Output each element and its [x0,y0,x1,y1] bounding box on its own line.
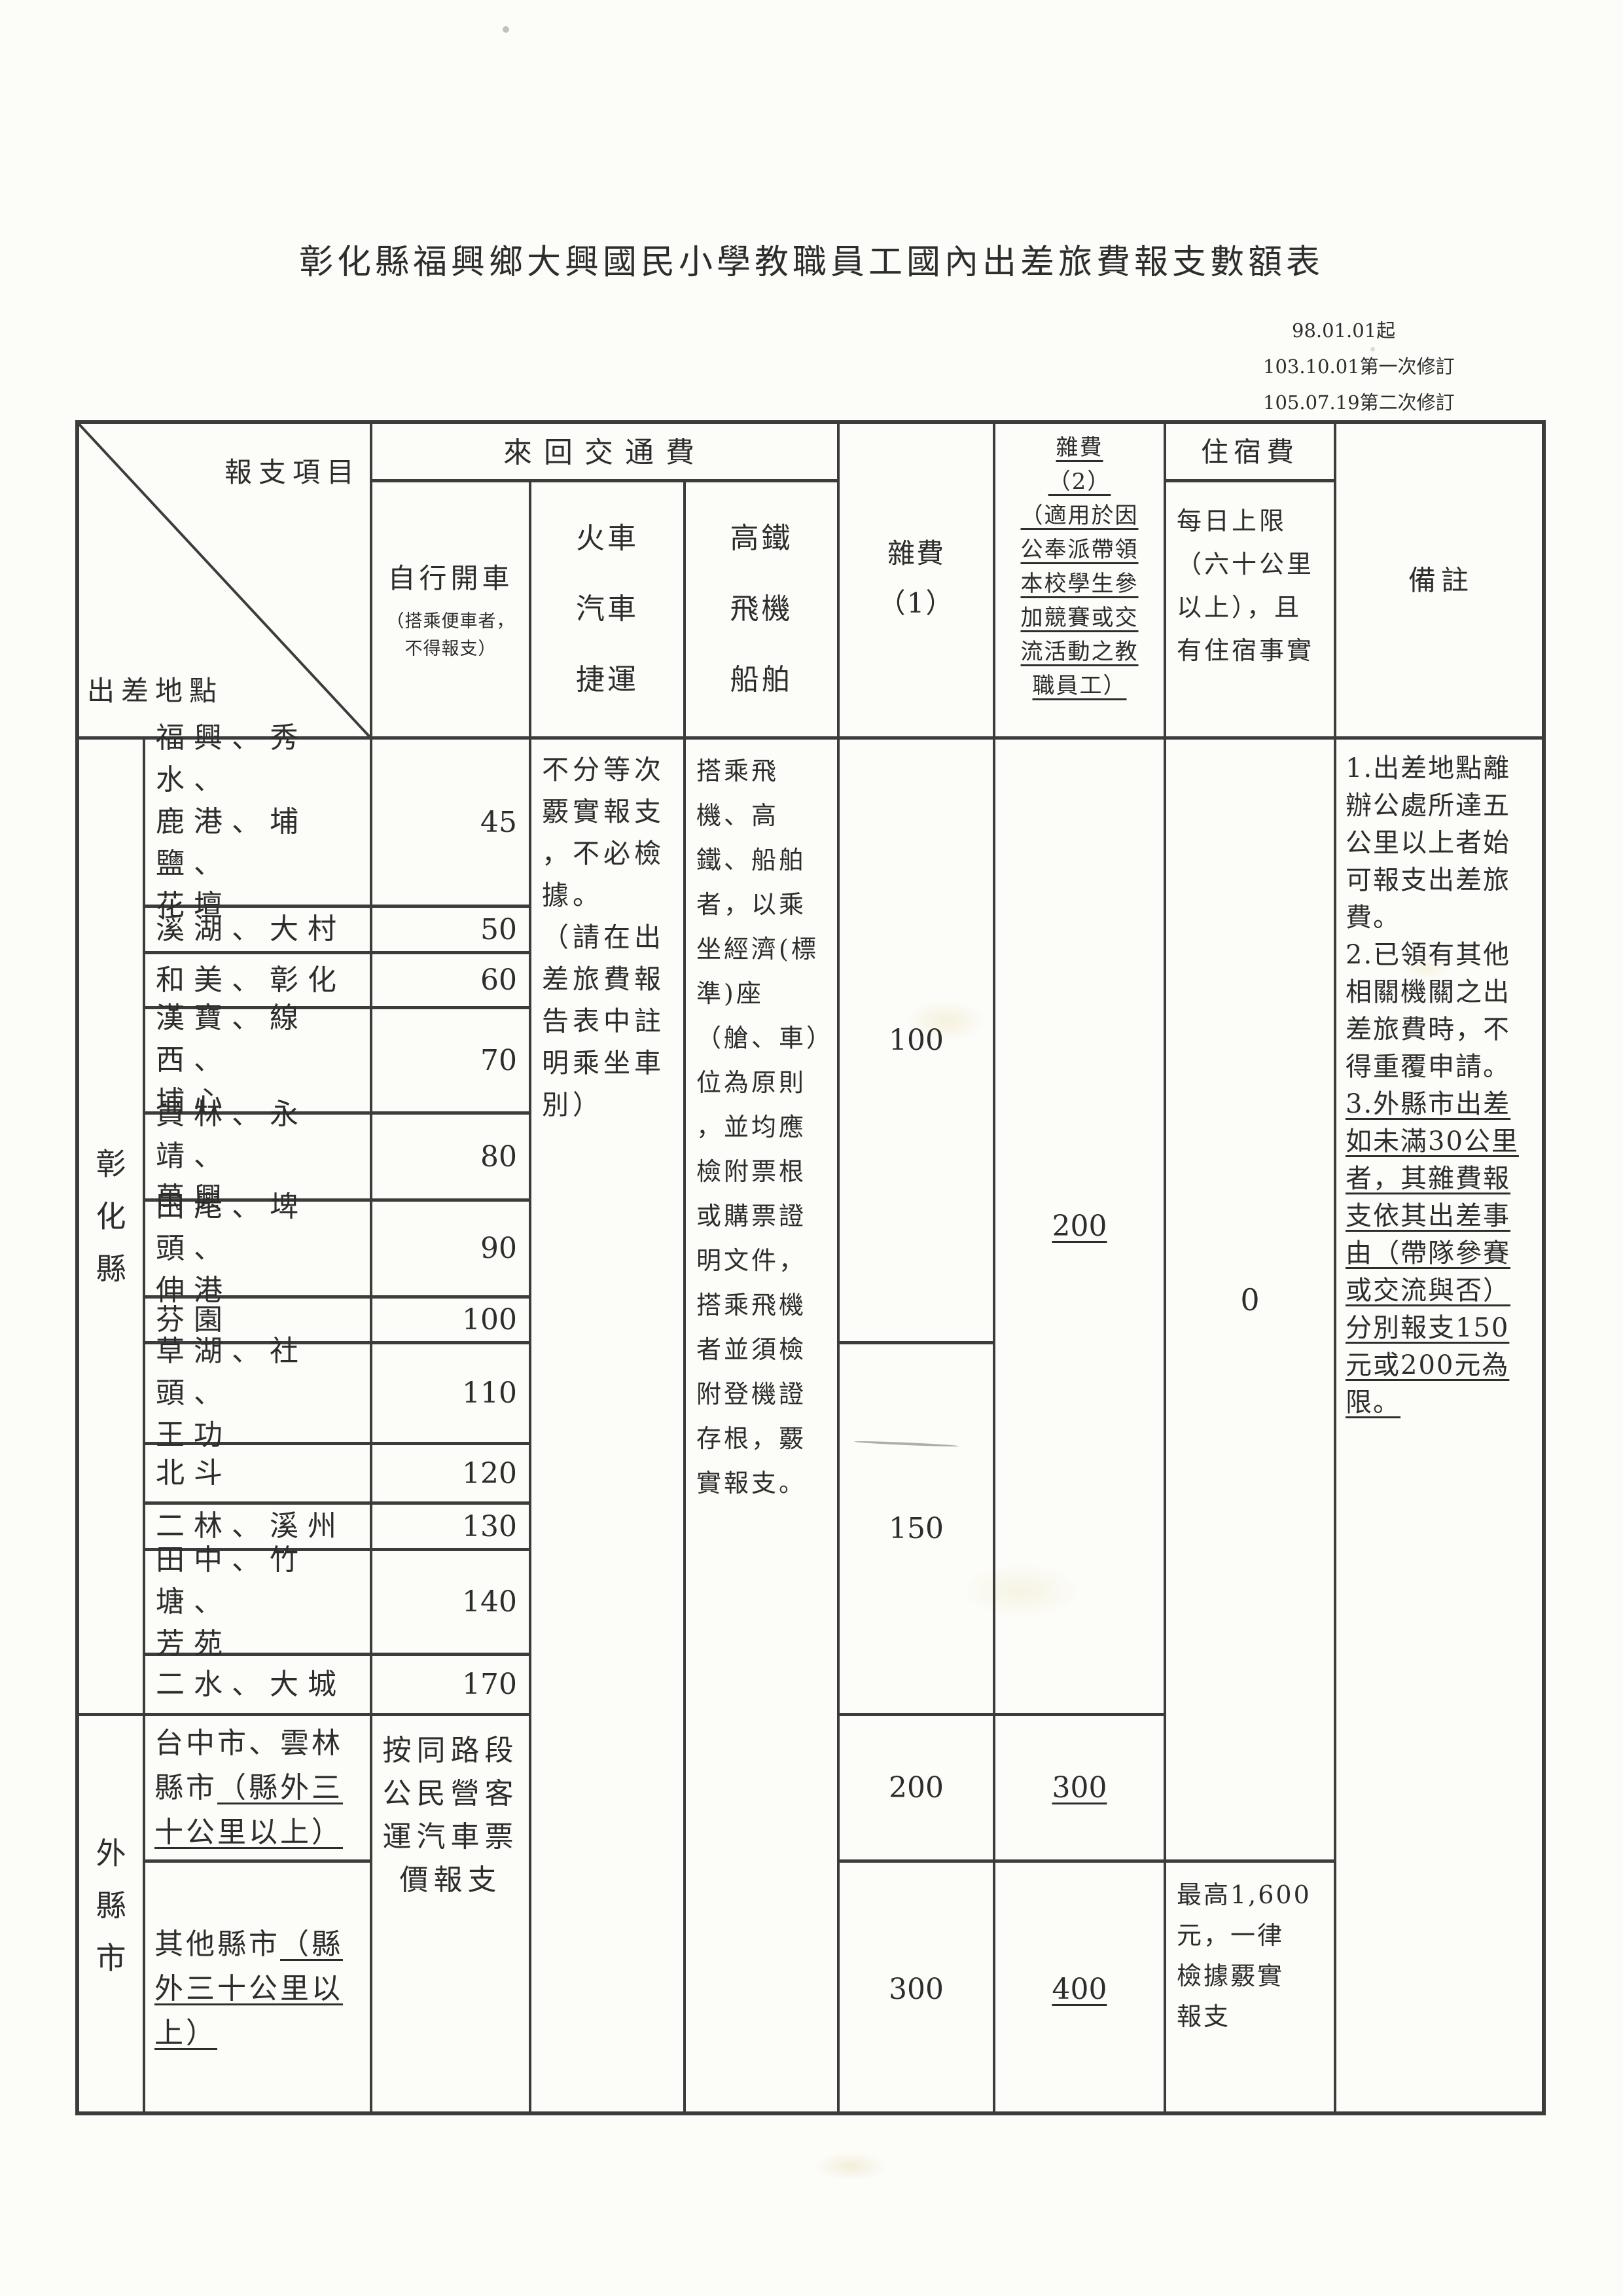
misc-fee-2-value: 200 [995,740,1166,1716]
scanned-document-page: 彰化縣福興鄉大興國民小學教職員工國內出差旅費報支數額表 98.01.01起 10… [0,0,1623,2296]
header-own-car: 自行開車 （搭乘便車者，不得報支） [372,482,531,740]
own-car-fee: 130 [372,1505,531,1551]
misc-fee-1-value: 150 [840,1344,995,1716]
location-row: 田尾、埤頭、伸港 [145,1202,372,1299]
location-row: 溪湖、大村 [145,908,372,954]
header-misc-fee-2: 雜費（2）（適用於因公奉派帶領本校學生參加競賽或交流活動之教職員工） [995,420,1166,740]
own-car-fee: 80 [372,1115,531,1202]
location-row: 田中、竹塘、芳苑 [145,1551,372,1656]
corner-label-expense-items: 報支項目 [224,450,361,490]
own-car-fee: 110 [372,1344,531,1445]
own-car-fee: 70 [372,1009,531,1115]
hsr-plane-ship-note: 搭乘飛機、高鐵、船舶者，以乘坐經濟(標準)座（艙、車）位為原則，並均應檢附票根或… [686,740,840,2115]
revision-line-1: 98.01.01起 [1263,313,1455,349]
header-lodging-limit: 每日上限（六十公里以上），且有住宿事實 [1166,482,1336,740]
location-row: 北斗 [145,1445,372,1505]
location-row: 二水、大城 [145,1656,372,1716]
misc-fee-2-number: 400 [1052,1973,1107,2006]
header-lodging-fee: 住宿費 [1166,420,1336,482]
misc-fee-1-value: 300 [840,1863,995,2115]
group-label-changhua-county: 彰化縣 [75,740,145,1716]
location-row: 其他縣市（縣外三十公里以上） [145,1863,372,2115]
scan-speck [1370,347,1375,351]
misc-fee-2-number: 300 [1052,1771,1107,1804]
misc-fee-2-value: 400 [995,1863,1166,2115]
train-bus-mrt-note: 不分等次覈實報支，不必檢據。（請在出差旅費報告表中註明乘坐車別） [531,740,686,2115]
misc-fee-1-value: 200 [840,1716,995,1863]
location-row: 福興、秀水、鹿港、埔鹽、花壇 [145,740,372,908]
location-row: 台中市、雲林縣市（縣外三十公里以上） [145,1716,372,1863]
header-own-car-title: 自行開車 [387,556,513,596]
own-car-fee: 45 [372,740,531,908]
remarks-notes: 1.出差地點離辦公處所達五公里以上者始可報支出差旅費。2.已領有其他相關機關之出… [1336,740,1546,2115]
group-label-other-counties: 外縣市 [75,1716,145,2115]
own-car-fee: 50 [372,908,531,954]
own-car-fee: 120 [372,1445,531,1505]
misc-fee-2-value: 300 [995,1716,1166,1863]
lodging-fee-max: 最高1,600元，一律檢據覈實報支 [1166,1863,1336,2115]
own-car-fee: 140 [372,1551,531,1656]
own-car-fee: 100 [372,1299,531,1344]
location-row: 草湖、社頭、王功 [145,1344,372,1445]
header-own-car-note: （搭乘便車者，不得報支） [387,608,515,663]
scan-speck [503,26,509,33]
own-car-fee: 170 [372,1656,531,1716]
lodging-fee-zero: 0 [1166,740,1336,1863]
header-remarks: 備註 [1336,420,1546,740]
revision-history: 98.01.01起 103.10.01第一次修訂 105.07.19第二次修訂 [1263,313,1455,421]
own-car-fee: 90 [372,1202,531,1299]
misc-fee-2-number: 200 [1052,1210,1107,1243]
group-label-text: 外縣市 [88,1837,131,1994]
header-train-bus-mrt: 火車汽車捷運 [531,482,686,740]
group-label-text: 彰化縣 [88,1148,131,1305]
corner-header-cell: 報支項目 出差地點 [75,420,372,740]
header-misc-fee-1: 雜費（1） [840,420,995,740]
header-hsr-plane-ship: 高鐵飛機船舶 [686,482,840,740]
header-roundtrip-transport: 來回交通費 [372,420,840,482]
own-car-fee: 60 [372,954,531,1009]
misc-fee-1-value: 100 [840,740,995,1344]
document-title: 彰化縣福興鄉大興國民小學教職員工國內出差旅費報支數額表 [0,234,1623,283]
revision-line-3: 105.07.19第二次修訂 [1263,385,1455,421]
revision-line-2: 103.10.01第一次修訂 [1263,349,1455,385]
corner-label-destination: 出差地點 [87,669,223,709]
expense-table: 報支項目 出差地點 來回交通費 自行開車 （搭乘便車者，不得報支） 火車汽車捷運… [75,420,1546,2115]
own-car-other-counties-note: 按同路段公民營客運汽車票價報支 [372,1716,531,2115]
